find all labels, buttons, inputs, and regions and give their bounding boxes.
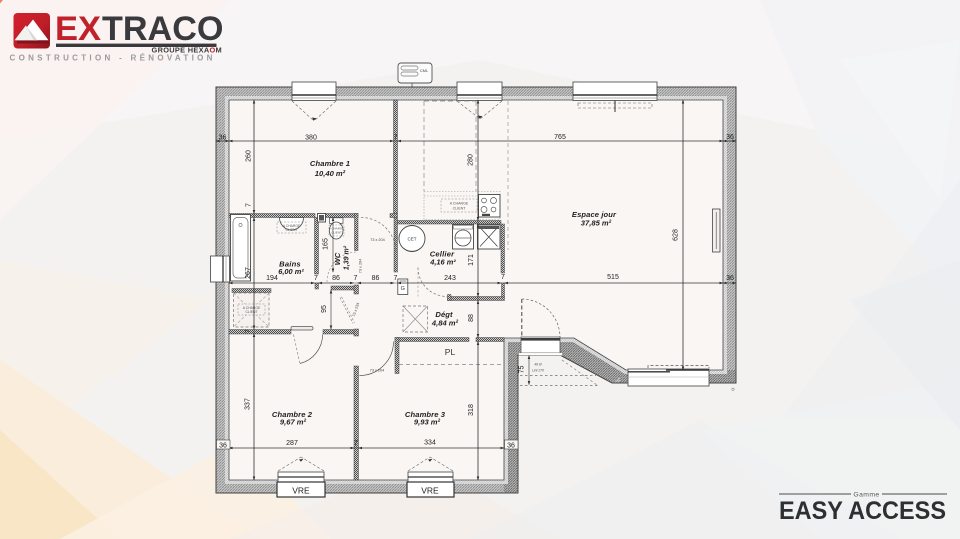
svg-text:10,40 m²: 10,40 m² bbox=[315, 169, 346, 178]
svg-text:7: 7 bbox=[354, 275, 358, 282]
svg-text:1,39 m²: 1,39 m² bbox=[344, 245, 351, 270]
svg-text:73 x 204: 73 x 204 bbox=[359, 259, 363, 274]
svg-text:36: 36 bbox=[219, 135, 227, 142]
svg-text:165: 165 bbox=[323, 238, 330, 250]
svg-text:CET: CET bbox=[408, 237, 417, 242]
svg-text:267: 267 bbox=[245, 267, 252, 279]
svg-text:7: 7 bbox=[501, 274, 505, 281]
svg-text:36: 36 bbox=[507, 443, 515, 450]
svg-text:48 Ø: 48 Ø bbox=[534, 363, 542, 367]
svg-text:CLIENT: CLIENT bbox=[245, 310, 257, 314]
svg-text:Lint 270: Lint 270 bbox=[532, 369, 544, 373]
svg-text:7: 7 bbox=[314, 275, 318, 282]
svg-text:36: 36 bbox=[726, 134, 734, 141]
svg-text:243: 243 bbox=[444, 275, 456, 282]
svg-text:WC: WC bbox=[333, 252, 342, 265]
svg-text:515: 515 bbox=[607, 274, 619, 281]
svg-text:36: 36 bbox=[219, 443, 227, 450]
svg-text:TRACO: TRACO bbox=[102, 10, 224, 48]
svg-text:7: 7 bbox=[246, 203, 253, 207]
svg-text:75: 75 bbox=[519, 366, 526, 374]
svg-text:765: 765 bbox=[554, 134, 566, 141]
svg-text:9,67 m²: 9,67 m² bbox=[280, 418, 307, 427]
svg-text:88: 88 bbox=[468, 314, 475, 322]
svg-text:VRE: VRE bbox=[292, 486, 310, 496]
svg-text:CLIENT: CLIENT bbox=[285, 228, 297, 232]
svg-text:171: 171 bbox=[468, 254, 475, 266]
svg-text:86: 86 bbox=[332, 275, 340, 282]
svg-text:4,84 m²: 4,84 m² bbox=[431, 319, 459, 328]
svg-text:VRE: VRE bbox=[421, 486, 439, 496]
svg-text:6,00 m²: 6,00 m² bbox=[278, 267, 304, 276]
svg-text:7: 7 bbox=[245, 329, 252, 333]
svg-text:260: 260 bbox=[246, 150, 253, 162]
svg-text:628: 628 bbox=[673, 229, 680, 241]
svg-text:9,93 m²: 9,93 m² bbox=[414, 418, 441, 427]
svg-text:EX: EX bbox=[55, 10, 101, 48]
svg-text:EASY ACCESS: EASY ACCESS bbox=[779, 497, 946, 525]
svg-text:Chambre 1: Chambre 1 bbox=[310, 159, 350, 168]
svg-text:4,16 m²: 4,16 m² bbox=[429, 258, 456, 267]
svg-text:95: 95 bbox=[321, 305, 328, 313]
svg-text:380: 380 bbox=[305, 135, 317, 142]
svg-text:A CHARGE: A CHARGE bbox=[450, 202, 469, 206]
svg-text:7: 7 bbox=[394, 135, 398, 142]
svg-text:7: 7 bbox=[394, 275, 398, 282]
svg-text:PL: PL bbox=[445, 347, 456, 357]
svg-text:CLIENT: CLIENT bbox=[453, 207, 467, 211]
svg-text:CML: CML bbox=[420, 68, 429, 73]
svg-text:73 x 204: 73 x 204 bbox=[370, 369, 385, 373]
svg-text:A CHARGE: A CHARGE bbox=[243, 306, 261, 310]
svg-text:318: 318 bbox=[468, 404, 475, 416]
svg-text:CONSTRUCTION - RÉNOVATION: CONSTRUCTION - RÉNOVATION bbox=[10, 54, 216, 63]
svg-text:194: 194 bbox=[266, 275, 278, 282]
svg-text:37,85 m²: 37,85 m² bbox=[581, 219, 612, 228]
svg-text:287: 287 bbox=[286, 440, 298, 447]
svg-text:280: 280 bbox=[468, 154, 475, 166]
svg-text:86: 86 bbox=[372, 275, 380, 282]
svg-text:73 x 204: 73 x 204 bbox=[370, 238, 385, 242]
svg-text:7: 7 bbox=[354, 440, 358, 447]
svg-text:334: 334 bbox=[424, 440, 436, 447]
svg-text:36: 36 bbox=[726, 275, 734, 282]
svg-text:337: 337 bbox=[245, 398, 252, 410]
svg-text:G: G bbox=[401, 286, 405, 292]
svg-text:A CHARGE: A CHARGE bbox=[283, 224, 301, 228]
